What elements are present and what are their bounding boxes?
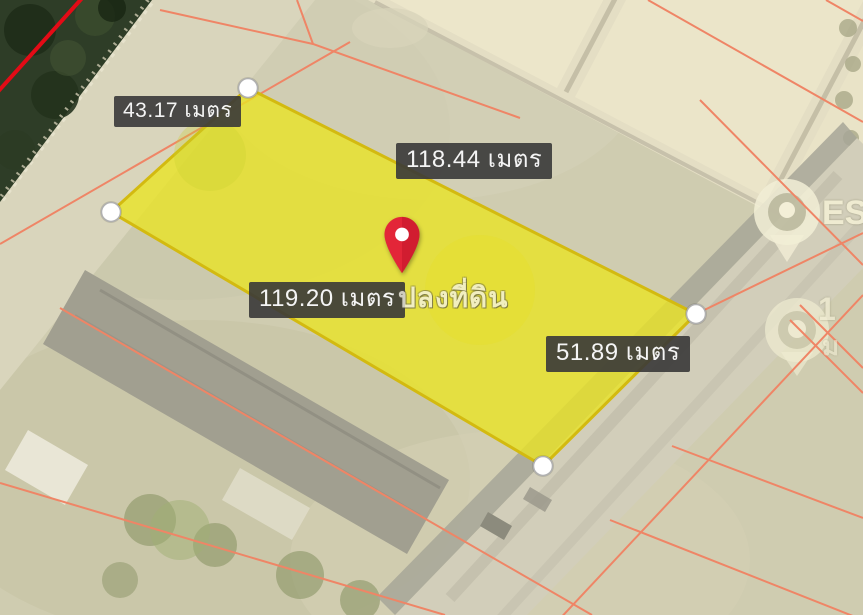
measurement-label-northwest: 43.17 เมตร (114, 96, 241, 127)
measurement-label-southeast: 51.89 เมตร (546, 336, 690, 372)
map-viewport[interactable]: 43.17 เมตร 118.44 เมตร 119.20 เมตร 51.89… (0, 0, 863, 615)
plot-ground-patch (174, 119, 246, 191)
vertex-handle-top[interactable] (239, 79, 258, 98)
location-pin-icon[interactable] (379, 215, 425, 276)
map-watermark: ปลงที่ดิน (398, 276, 508, 320)
measurement-label-northeast: 118.44 เมตร (396, 143, 552, 179)
measurement-label-southwest: 119.20 เมตร (249, 282, 405, 318)
poi-label-top: ES (822, 194, 863, 233)
vertex-handle-bottom[interactable] (534, 457, 553, 476)
vertex-handle-left[interactable] (102, 203, 121, 222)
poi-label-bottom-line1: 1 (818, 291, 836, 328)
vertex-handle-right[interactable] (687, 305, 706, 324)
poi-label-bottom-line2: ม (822, 326, 839, 367)
